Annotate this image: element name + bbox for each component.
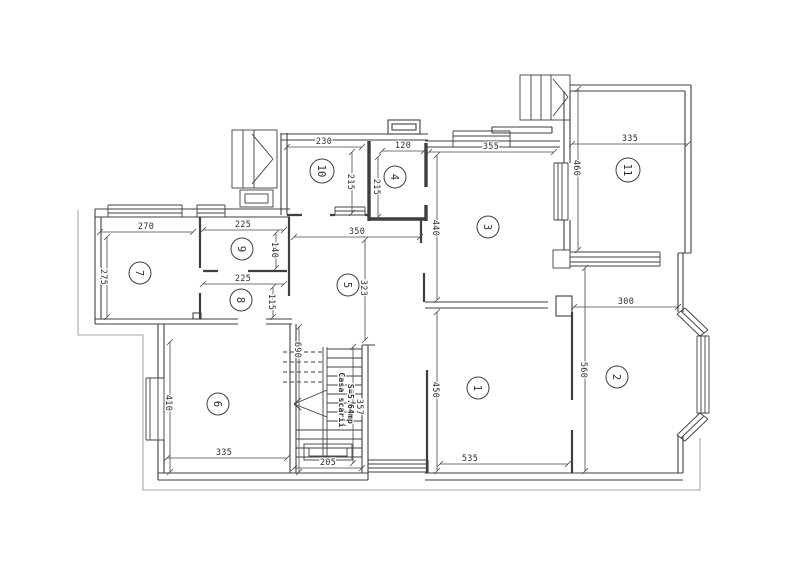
radiator-room11-box xyxy=(553,250,570,268)
pocket-door-room3 xyxy=(554,163,568,220)
room-3-label: 3 xyxy=(477,216,499,238)
dim-room5-height: 323 xyxy=(358,280,368,296)
dim-room8-width: 225 xyxy=(235,274,251,284)
floor-plan-drawing: 270 275 225 140 225 115 230 215 120 215 … xyxy=(0,0,808,563)
room-5-label: 5 xyxy=(337,274,359,296)
dim-room7-width: 270 xyxy=(138,222,154,232)
dim-room9-height: 140 xyxy=(269,242,279,258)
window-room7-top xyxy=(108,205,182,217)
room-5-number: 5 xyxy=(341,282,353,288)
stair-stringer xyxy=(323,347,327,460)
interior-walls xyxy=(200,215,572,473)
stairwell-area: S=5.64mp xyxy=(346,384,355,424)
room-8-number: 8 xyxy=(234,297,246,303)
room-4-label: 4 xyxy=(384,166,406,188)
dim-room1-height: 450 xyxy=(430,382,440,398)
dim-room10-height: 215 xyxy=(345,174,355,190)
room-labels: 1 2 3 4 5 6 7 8 xyxy=(129,158,640,415)
dim-room8-height: 115 xyxy=(266,294,276,310)
window-room9-top xyxy=(197,205,225,217)
bay-window-middle xyxy=(697,336,709,413)
room-7-number: 7 xyxy=(133,270,145,276)
dim-room2-height: 560 xyxy=(578,362,588,378)
bay-window-lower xyxy=(677,413,708,441)
room-2-label: 2 xyxy=(606,366,628,388)
dim-room11-height: 460 xyxy=(571,160,581,176)
dim-room3-width: 355 xyxy=(483,142,499,152)
radiator-room11 xyxy=(570,252,660,266)
room-6-number: 6 xyxy=(211,401,223,407)
window-room6-left xyxy=(146,378,164,440)
dim-room11-width: 335 xyxy=(622,134,638,144)
dim-room6-height: 410 xyxy=(163,395,173,411)
exterior-stair-right xyxy=(520,75,570,120)
room-2-number: 2 xyxy=(610,374,622,380)
room-3-number: 3 xyxy=(481,224,493,230)
dim-room4-width: 120 xyxy=(395,141,411,151)
dim-room5-width: 350 xyxy=(349,227,365,237)
room-10-label: 10 xyxy=(310,159,334,183)
room-1-number: 1 xyxy=(471,385,483,391)
room-11-label: 11 xyxy=(616,158,640,182)
dim-room2-width: 300 xyxy=(618,297,634,307)
dim-room4-height: 215 xyxy=(371,179,381,195)
dim-room9-width: 225 xyxy=(235,220,251,230)
room-7-label: 7 xyxy=(129,262,151,284)
window-corridor-bottom xyxy=(368,460,428,472)
room-8-label: 8 xyxy=(230,289,252,311)
room-9-number: 9 xyxy=(235,246,247,252)
stair-dashed-flight xyxy=(283,352,323,382)
room-10-number: 10 xyxy=(315,165,327,178)
dim-room7-height: 275 xyxy=(98,269,108,285)
dim-room10-width: 230 xyxy=(316,137,332,147)
bay-window-upper xyxy=(677,308,708,336)
dim-hall-height: 690 xyxy=(292,342,302,358)
room-11-number: 11 xyxy=(621,164,633,177)
room-1-label: 1 xyxy=(467,377,489,399)
exterior-stair-left xyxy=(232,130,277,207)
dim-room6-width: 335 xyxy=(216,448,232,458)
dim-room3-height: 440 xyxy=(430,220,440,236)
stairwell-name: Casa scarii xyxy=(337,372,347,427)
stairwell-label: Casa scarii S=5.64mp xyxy=(337,372,355,427)
floor-plan-sheet: 270 275 225 140 225 115 230 215 120 215 … xyxy=(0,0,808,563)
dim-stairwell-width: 205 xyxy=(320,458,336,468)
room-9-label: 9 xyxy=(231,238,253,260)
radiator-room10 xyxy=(335,207,365,215)
dim-room1-width: 535 xyxy=(462,454,478,464)
room-6-label: 6 xyxy=(207,393,229,415)
room-4-number: 4 xyxy=(388,174,400,180)
